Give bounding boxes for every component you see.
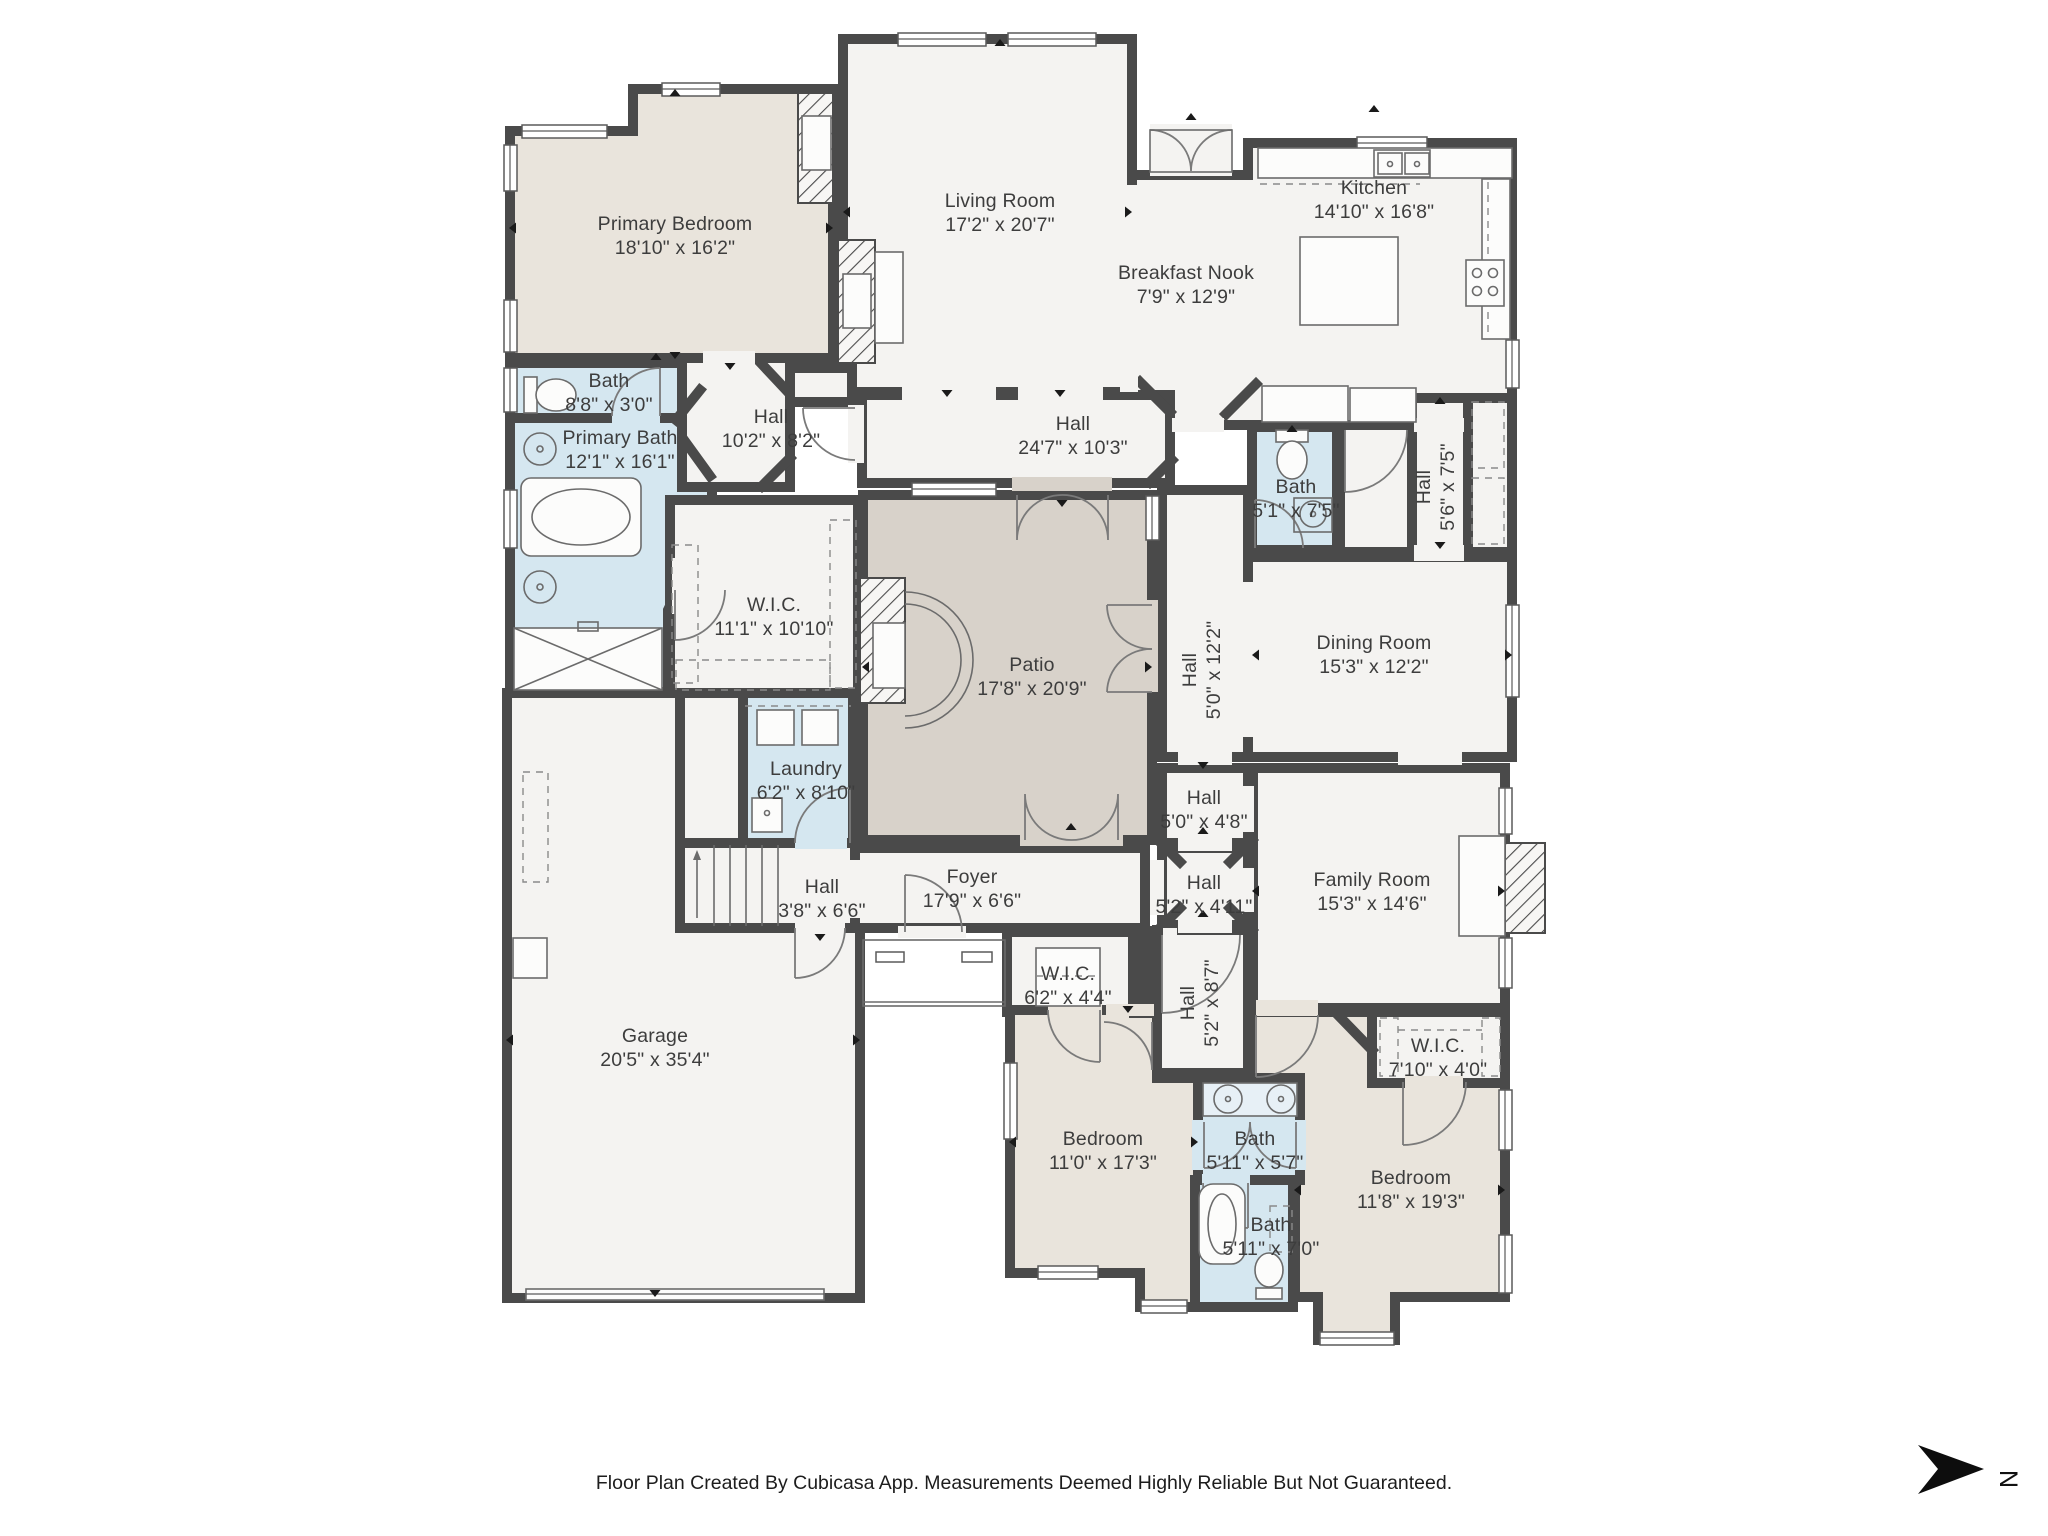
toilet-bowl-icon <box>1277 441 1307 479</box>
living-hearth <box>875 252 903 343</box>
room-label-laundry-14: Laundry6'2" x 8'10" <box>757 757 856 805</box>
utility-box <box>513 938 547 978</box>
window <box>522 125 607 138</box>
toilet-tank-icon <box>524 377 537 413</box>
corridor <box>680 693 743 843</box>
room-label-hall-16: Hall3'8" x 6'6" <box>778 875 865 923</box>
measure-arrow-icon <box>1186 113 1197 120</box>
window <box>504 490 517 548</box>
window <box>1141 1300 1187 1313</box>
room-label-hall-15: Hall5'0" x 4'8" <box>1160 786 1247 834</box>
room-label-breakfast-nook-3: Breakfast Nook7'9" x 12'9" <box>1118 261 1254 309</box>
room-label-hall-12: Hall5'0" x 12'2" <box>1178 621 1226 720</box>
room-label-hall-6: Hall10'2" x 8'2" <box>722 405 821 453</box>
window <box>1038 1266 1098 1279</box>
room-label-primary-bedroom-0: Primary Bedroom18'10" x 16'2" <box>598 212 753 260</box>
washer-icon <box>757 710 794 745</box>
window <box>1499 938 1512 988</box>
room-label-bedroom-27: Bedroom11'8" x 19'3" <box>1357 1166 1465 1214</box>
room-label-living-room-1: Living Room17'2" x 20'7" <box>945 189 1056 237</box>
room-label-patio-11: Patio17'8" x 20'9" <box>977 653 1087 701</box>
room-label-hall-18: Hall5'2" x 4'11" <box>1155 871 1252 919</box>
floor-plan-page: N Primary Bedroom18'10" x 16'2"Living Ro… <box>0 0 2048 1536</box>
room-label-bath-8: Bath5'1" x 7'5" <box>1252 475 1339 523</box>
closet-alcove <box>790 368 852 402</box>
room-label-hall-9: Hall5'6" x 7'5" <box>1412 443 1460 530</box>
measure-arrow-icon <box>1369 105 1380 112</box>
window <box>1506 340 1519 388</box>
window <box>1146 496 1159 540</box>
room-label-hall-7: Hall24'7" x 10'3" <box>1018 412 1128 460</box>
room-label-bath-25: Bath5'11" x 5'7" <box>1206 1127 1303 1175</box>
window <box>662 83 720 96</box>
room-label-primary-bath-5: Primary Bath12'1" x 16'1" <box>562 426 677 474</box>
window <box>1320 1332 1394 1345</box>
window <box>1004 1063 1017 1139</box>
room-label-kitchen-2: Kitchen14'10" x 16'8" <box>1314 176 1435 224</box>
window <box>504 145 517 191</box>
room-label-hall-21: Hall5'2" x 8'7" <box>1176 959 1224 1046</box>
window <box>1499 788 1512 834</box>
footer-disclaimer: Floor Plan Created By Cubicasa App. Meas… <box>596 1472 1452 1495</box>
closet-b <box>1340 425 1412 552</box>
porch <box>863 940 1005 1006</box>
room-label-dining-room-13: Dining Room15'3" x 12'2" <box>1317 631 1432 679</box>
room-label-bedroom-24: Bedroom11'0" x 17'3" <box>1049 1127 1157 1175</box>
window <box>1008 33 1096 46</box>
north-label: N <box>1994 1470 2022 1488</box>
pantry <box>1468 398 1512 552</box>
window <box>1499 1235 1512 1293</box>
window <box>898 33 986 46</box>
stove-icon <box>1466 260 1504 306</box>
room-label-family-room-19: Family Room15'3" x 14'6" <box>1313 868 1430 916</box>
room-label-garage-23: Garage20'5" x 35'4" <box>600 1024 710 1072</box>
room-label-bath-4: Bath8'8" x 3'0" <box>565 369 652 417</box>
dryer-icon <box>802 710 838 745</box>
window <box>962 952 992 962</box>
window <box>504 300 517 352</box>
north-arrow-icon: N <box>1918 1445 2022 1494</box>
fridge-icon <box>1262 386 1348 422</box>
room-label-bath-26: Bath5'11" x 7'0" <box>1222 1213 1319 1261</box>
window <box>1506 605 1519 697</box>
room-label-w-i-c-20: W.I.C.6'2" x 4'4" <box>1024 962 1111 1010</box>
window <box>1499 1090 1512 1150</box>
window <box>912 483 996 496</box>
room-label-foyer-17: Foyer17'9" x 6'6" <box>923 865 1022 913</box>
kitchen-island <box>1300 237 1398 325</box>
room-label-w-i-c-10: W.I.C.11'1" x 10'10" <box>714 593 833 641</box>
window <box>876 952 904 962</box>
cabinet <box>1350 388 1416 422</box>
room-label-w-i-c-22: W.I.C.7'10" x 4'0" <box>1389 1034 1488 1082</box>
kitchen-counter-right <box>1482 179 1510 339</box>
window <box>504 368 517 412</box>
family-fireplace-hatch <box>1505 843 1545 933</box>
toilet-tank-icon <box>1256 1288 1282 1299</box>
